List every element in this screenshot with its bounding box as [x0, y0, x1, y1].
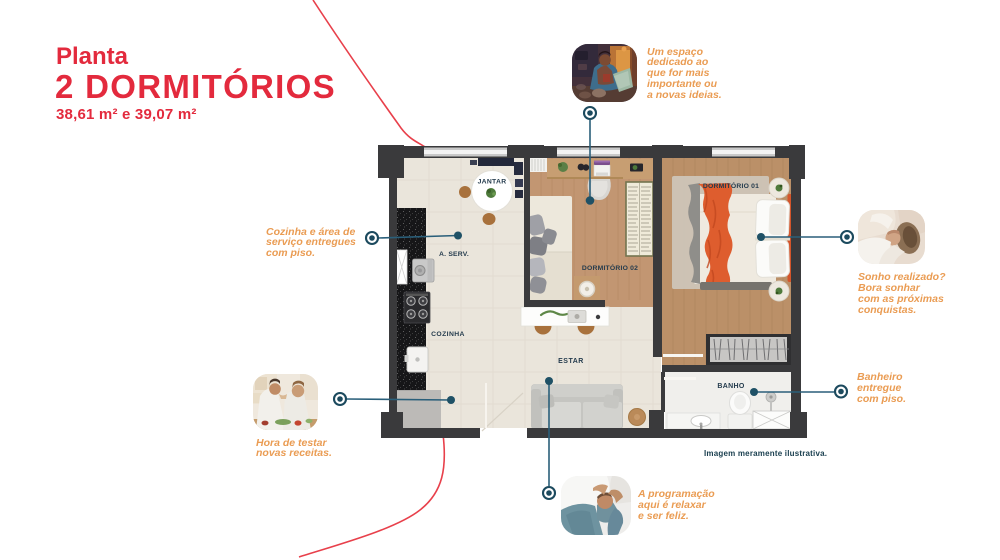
- svg-text:DORMITÓRIO 02: DORMITÓRIO 02: [582, 263, 638, 272]
- svg-text:BANHO: BANHO: [717, 383, 744, 390]
- svg-text:ESTAR: ESTAR: [558, 358, 584, 365]
- svg-text:A. SERV.: A. SERV.: [439, 251, 469, 258]
- svg-text:DORMITÓRIO 01: DORMITÓRIO 01: [703, 181, 759, 190]
- svg-text:COZINHA: COZINHA: [431, 331, 465, 338]
- svg-text:JANTAR: JANTAR: [478, 179, 507, 186]
